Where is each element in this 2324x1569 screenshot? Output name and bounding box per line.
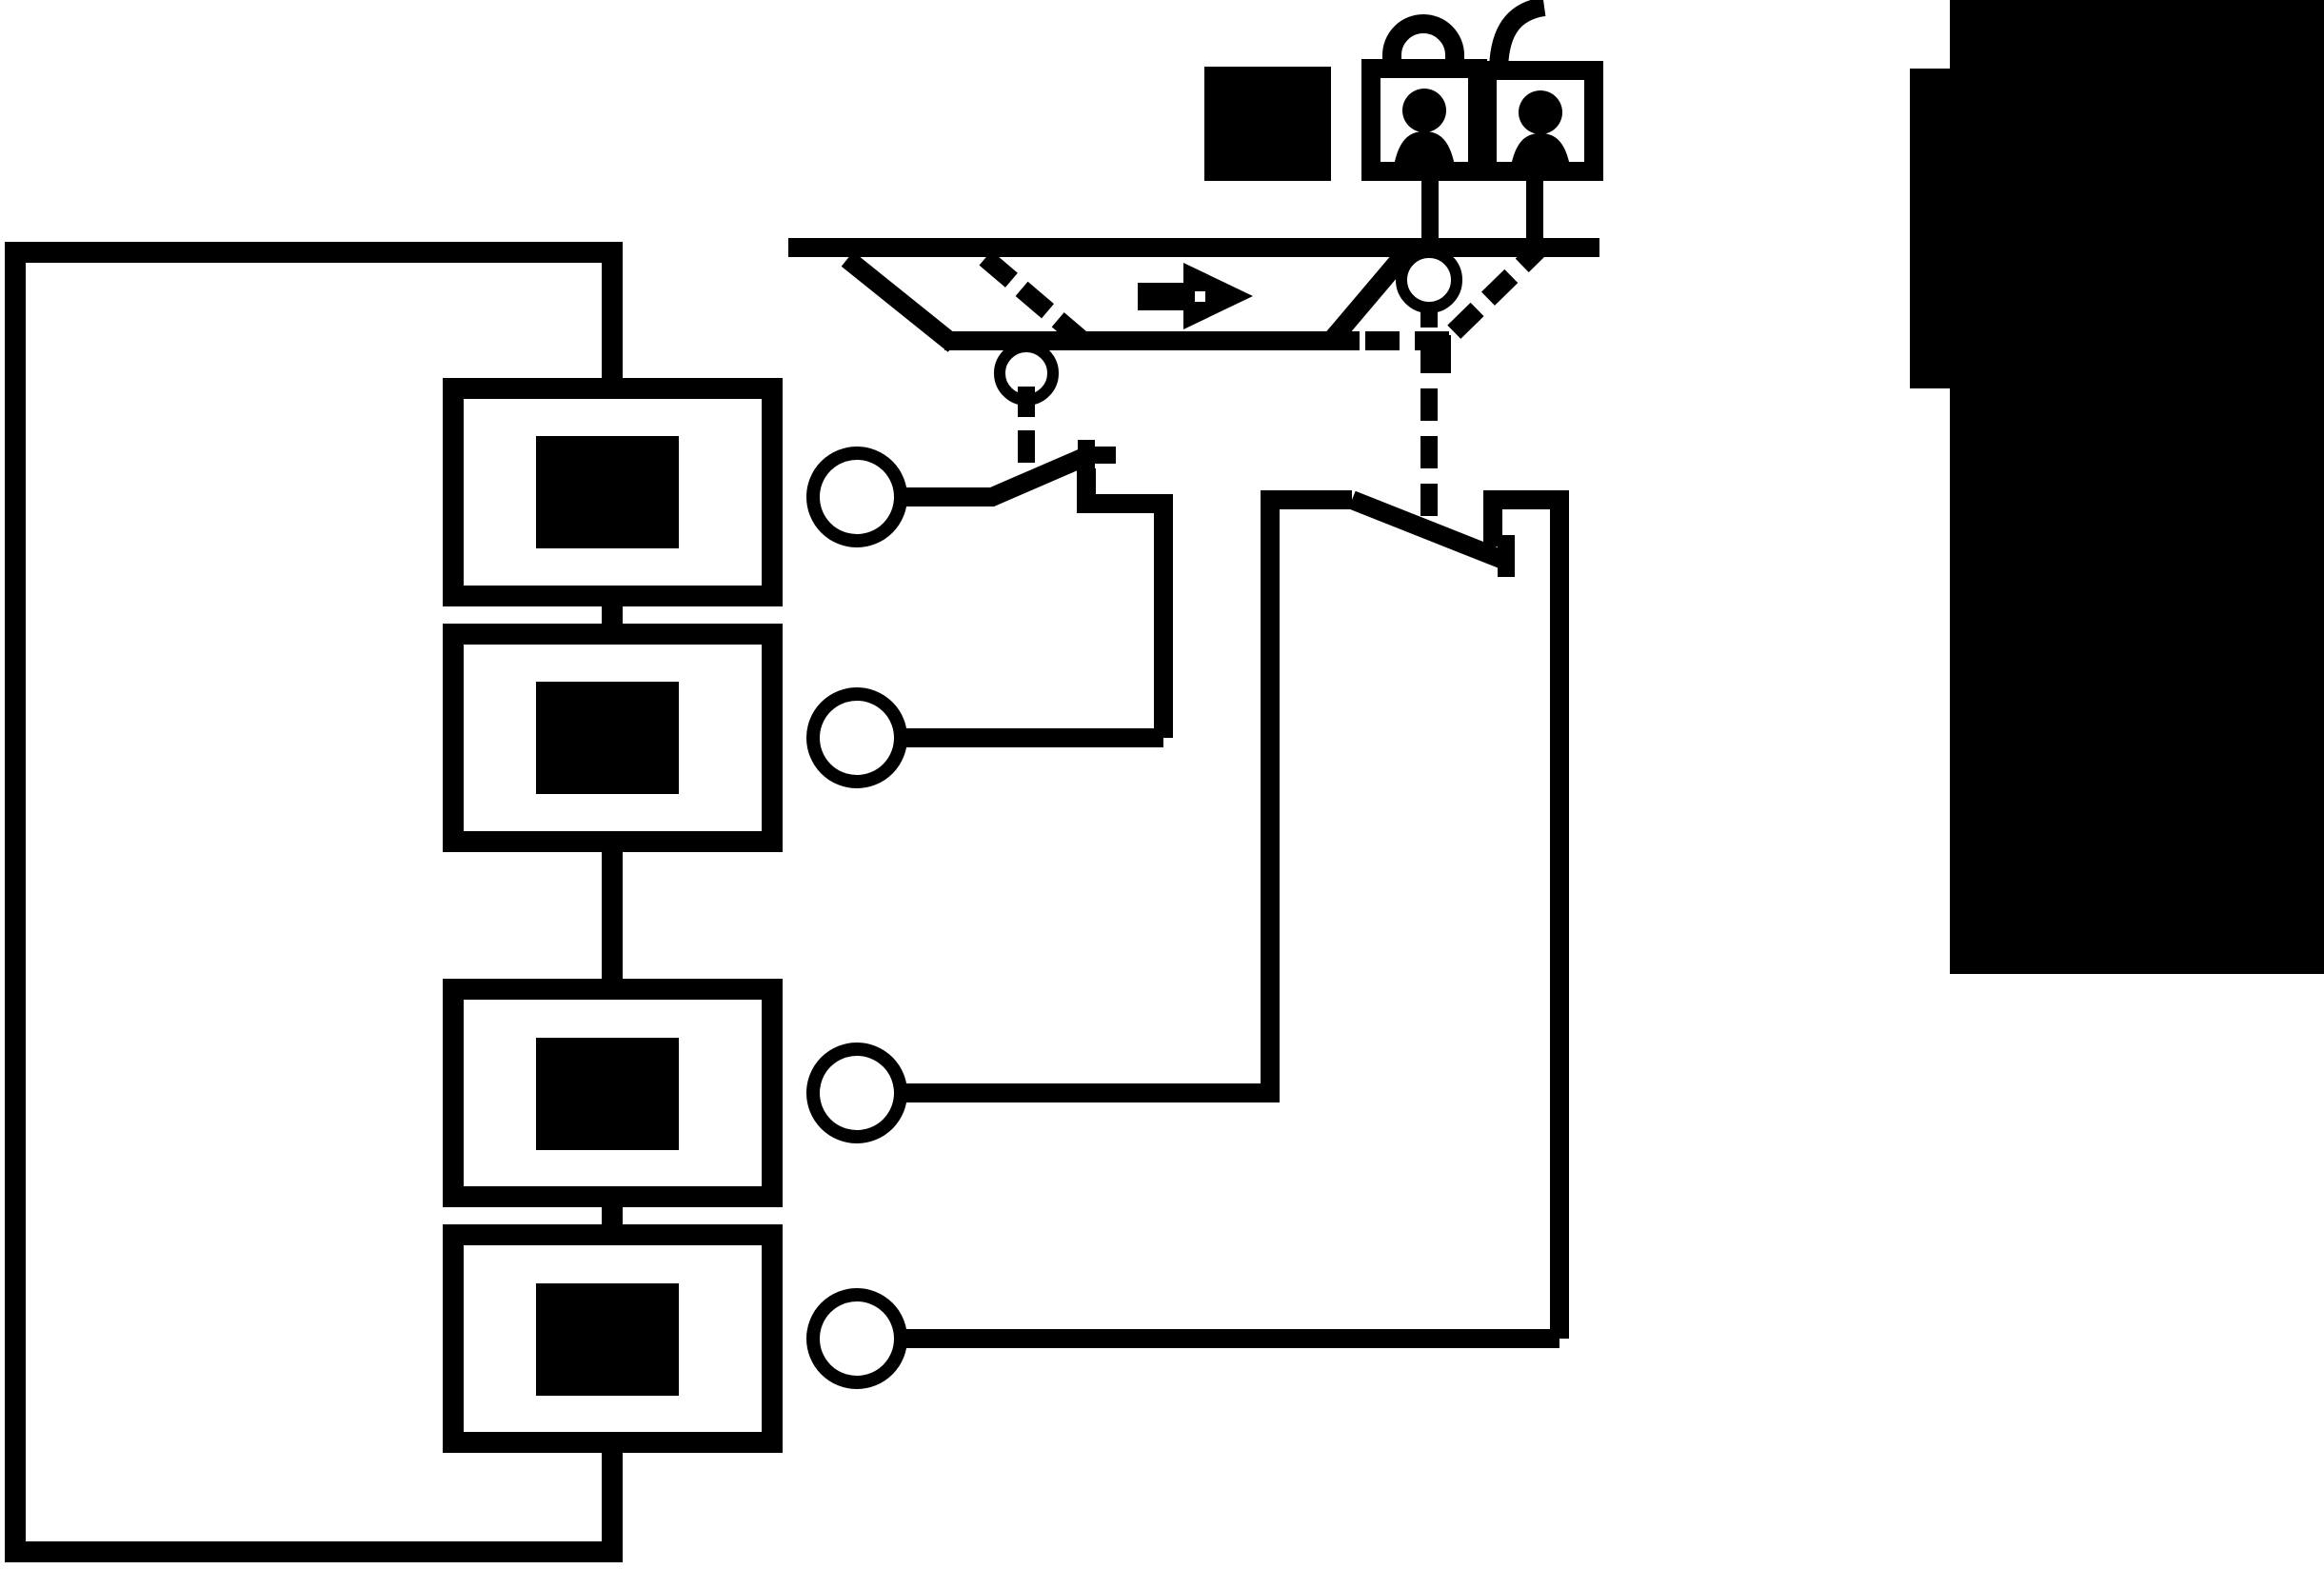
contact-2-fixed-path: [1493, 500, 1559, 1339]
guard-door-open-position: [985, 243, 1545, 373]
machine-block: [1910, 0, 2324, 974]
contact-block-4-core: [536, 1283, 679, 1396]
guard-assembly: [788, 243, 1599, 516]
guard-right-slant: [1331, 253, 1405, 341]
diagram-page: [0, 0, 2324, 1569]
contact-1-fixed-path: [1086, 468, 1163, 738]
terminal-2-circle: [813, 694, 901, 782]
contact-block-3-core: [536, 1038, 679, 1150]
switch-contact-2: [903, 500, 1559, 1339]
contact-1-blade: [903, 454, 1091, 497]
guard-dashed-left-slant: [985, 258, 1081, 339]
rail-pivot-circle: [1401, 252, 1457, 308]
contact-block-2-core: [536, 682, 679, 794]
guard-left-slant: [847, 259, 954, 345]
padlock-2-person-torso: [1510, 133, 1571, 171]
diagram-canvas: [0, 0, 2324, 1569]
indicator-square-icon: [1204, 67, 1331, 181]
switch-housing: [15, 252, 612, 1552]
padlock-1-person-head: [1402, 89, 1446, 132]
machine-block-main: [1950, 0, 2324, 974]
padlock-1-person-torso: [1393, 131, 1456, 171]
switch-contact-1: [903, 440, 1163, 738]
padlock-2-person-head: [1519, 90, 1562, 134]
right-arrow-icon: [1138, 263, 1253, 329]
locked-padlock-person-icon: [1371, 24, 1478, 248]
terminal-3-wire: [903, 500, 1352, 1093]
machine-block-ledge: [1910, 69, 1950, 388]
housing-outline-path: [15, 252, 612, 1552]
guard-door: [847, 253, 1405, 345]
terminal-4-circle: [813, 1295, 901, 1382]
arrow-head: [1183, 263, 1253, 329]
unlocked-padlock-person-icon: [1487, 7, 1594, 248]
contact-block-1-core: [536, 436, 679, 548]
terminal-3-circle: [813, 1049, 901, 1137]
terminals: [813, 453, 901, 1382]
terminal-1-circle: [813, 453, 901, 541]
arrow-head-dot: [1195, 291, 1205, 302]
